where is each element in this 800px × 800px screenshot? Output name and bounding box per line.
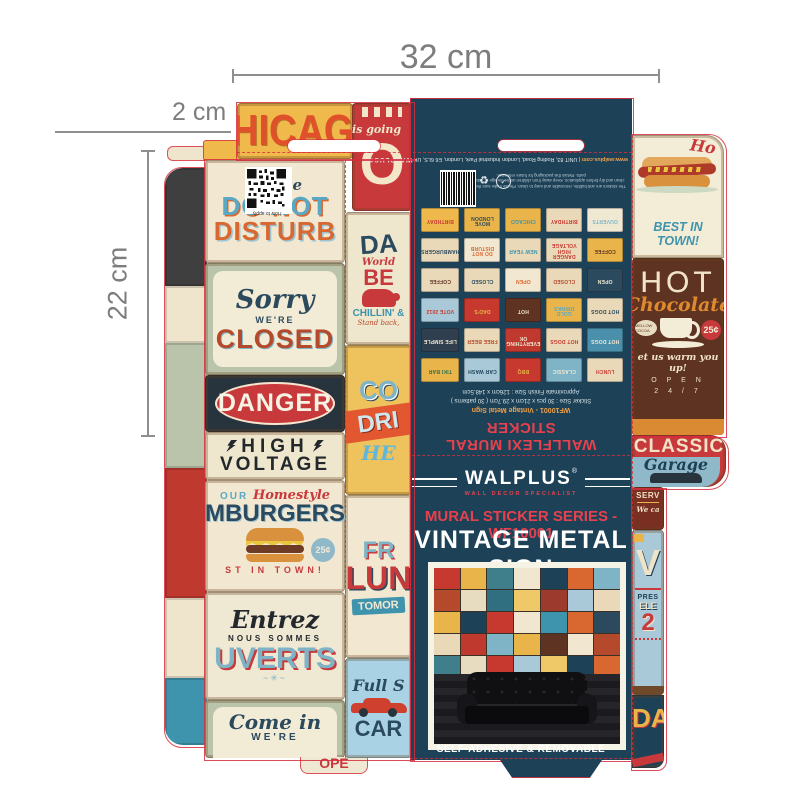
come-in-sign: Come in WE'RE (205, 700, 345, 758)
sign-band (632, 686, 664, 695)
car-illustration (650, 471, 702, 483)
thumbnail-sign: COFFEE (421, 268, 459, 292)
collage-tile (594, 634, 620, 655)
lightning-icon (226, 440, 237, 452)
collage-tile (487, 568, 513, 589)
collage-tile (594, 590, 620, 611)
thumbnail-sign: CHICAGO (505, 208, 541, 232)
cup-illustration (652, 318, 704, 348)
qr-caption: How to apply (243, 210, 291, 216)
high-voltage-sign: HIGH VOLTAGE (205, 432, 345, 480)
collage-tile (514, 634, 540, 655)
thumbnail-sign: LIFE SIMPLE (421, 328, 459, 352)
height-dimension-line (147, 150, 149, 437)
sign-decoration (362, 107, 402, 117)
pattern-thumbnail-grid: LUNCHCLASSICBBQCAR WASHTIKI BARHOT DOGSH… (421, 208, 623, 382)
hot-dog-sign: Ho BEST IN TOWN! (632, 135, 724, 258)
tick (141, 435, 155, 437)
car-illustration (351, 697, 407, 717)
ouverts-sign: Entrez NOUS SOMMES UVERTS ~✳~ (205, 592, 345, 700)
thumbnail-sign: EVERYTHING OK (505, 328, 541, 352)
registered-mark: ® (572, 468, 577, 475)
thumbnail-sign: MOVE LONDON (464, 208, 500, 232)
tick (232, 69, 234, 83)
thumbnail-sign: NEW YEAR (505, 238, 541, 262)
sorry-were-closed-sign: Sorry WE'RE CLOSED (205, 263, 345, 375)
collage-tile (541, 590, 567, 611)
thumbnail-sign: HOT (505, 298, 541, 322)
sku-line: WF10001 - Vintage Metal Sign (415, 406, 627, 413)
collage-tile (514, 590, 540, 611)
brand-lockup: WALPLUS® WALL DECOR SPECIALIST (412, 468, 630, 497)
classic-garage-sign: CLASSIC Garage (632, 435, 726, 487)
thumbnail-sign: DANGER HIGH VOLTAGE (546, 238, 582, 262)
thumbnail-sign: TIKI BAR (421, 358, 459, 382)
price-badge: 25¢ (311, 538, 335, 562)
height-dimension-label: 22 cm (103, 244, 134, 324)
pig-illustration (362, 289, 396, 307)
thumbnail-sign: CLOSED (464, 268, 500, 292)
collage-tile (514, 612, 540, 633)
collage-tile (434, 612, 460, 633)
thumbnail-sign: BBQ (505, 358, 541, 382)
brand-rule (585, 478, 630, 487)
thumbnail-sign: HAMBURGERS (421, 238, 459, 262)
collage-tile (487, 634, 513, 655)
collage-tile (541, 568, 567, 589)
collage-tile (487, 612, 513, 633)
product-spec-block: WF10001 - Vintage Metal Sign Sticker Siz… (415, 386, 627, 413)
hamburgers-sign: OUR Homestyle MBURGERS ST IN TOWN! 25¢ (205, 480, 345, 592)
partial-sign-tile (165, 468, 207, 598)
dads-bbq-sign: DA World BE CHILLIN' & Stand back, (345, 212, 412, 345)
recycle-icon: ♻ (479, 174, 489, 188)
thumbnail-sign: HOT DOGS (546, 328, 582, 352)
collage-tile (568, 568, 594, 589)
dads-sign-fragment: DA (632, 695, 664, 768)
brand-rule (412, 478, 457, 487)
thumbnail-sign: CLASSIC (546, 358, 582, 382)
sign-collage-wall (434, 568, 620, 677)
collage-tile (568, 634, 594, 655)
collage-tile (487, 590, 513, 611)
flap-dimension-line (55, 131, 231, 133)
sofa-illustration (457, 672, 597, 730)
burger-illustration (246, 528, 304, 562)
collage-tile (541, 634, 567, 655)
product-photo (428, 562, 626, 750)
collage-tile (434, 590, 460, 611)
thumbnail-sign: CLOSED (546, 268, 582, 292)
car-wash-sign: Full S CAR (345, 658, 412, 758)
service-sign: SERV We ca (632, 487, 664, 530)
collage-tile (434, 634, 460, 655)
fresh-lunch-sign: FR LUN TOMOR (345, 495, 412, 658)
certification-icon: ✓ (496, 174, 511, 189)
thumbnail-sign: HOT DOGS (587, 298, 623, 322)
collage-tile (461, 590, 487, 611)
thumbnail-sign: BIRTHDAY (546, 208, 582, 232)
thumbnail-sign: LUNCH (587, 358, 623, 382)
lightning-icon (313, 440, 324, 452)
finish-size-line: Approximate Finish Size : 126cm x 148.5c… (415, 386, 627, 395)
handle-slot-cutout (288, 140, 380, 152)
thumbnail-sign: HOT DOGS (587, 328, 623, 352)
qr-code (245, 167, 292, 214)
collage-tile (434, 568, 460, 589)
width-dimension-label: 32 cm (232, 38, 660, 77)
brand-tagline: WALL DECOR SPECIALIST (465, 491, 578, 497)
thumbnail-sign: BIRTHDAY (421, 208, 459, 232)
thumbnail-sign: VOTE 2012 (421, 298, 459, 322)
partial-sign-tile (165, 286, 207, 343)
thumbnail-sign: DAD'S (464, 298, 500, 322)
partial-sign-tile (165, 598, 207, 678)
thumbnail-sign: DO NOT DISTURB (464, 238, 500, 262)
barcode (440, 170, 476, 207)
cocoa-badge: MELLOW COCOA (635, 320, 657, 336)
collage-tile (568, 590, 594, 611)
tuck-flap: OPE (300, 757, 368, 774)
footer-claim: SELF-ADHESIVE & REMOVABLE (412, 744, 630, 755)
tuck-flap (500, 760, 602, 778)
thumbnail-sign: OPEN (587, 268, 623, 292)
partial-sign-tile (165, 343, 207, 468)
vote-election-sign: V PRES ELE 2 (632, 530, 664, 695)
collage-tile (594, 612, 620, 633)
width-dimension-line (232, 74, 660, 76)
left-edge-partial-signs (165, 168, 207, 745)
packaging-dieline-mockup: 32 cm 2 cm 22 cm HICAGO is going O Pleas… (0, 0, 800, 800)
price-badge: 25¢ (701, 320, 721, 340)
partial-sign-tile (165, 678, 207, 745)
hotdog-illustration (642, 157, 712, 191)
collage-tile (461, 568, 487, 589)
size-line: Sticker Size : 30 pcs x 21cm x 29.7cm ( … (415, 395, 627, 404)
thumbnail-sign: OUVERTS (587, 208, 623, 232)
partial-sign-tile (165, 168, 207, 286)
collage-tile (514, 568, 540, 589)
collage-tile (541, 612, 567, 633)
manufacturer-address: www.walplus.com | UNIT 83, Roding Road, … (414, 156, 628, 163)
collage-tile (568, 612, 594, 633)
collage-tile (461, 634, 487, 655)
sign-band (632, 419, 724, 435)
hot-chocolate-sign: HOT Chocolate et us warm you up! O P E N… (632, 258, 724, 435)
tick (658, 69, 660, 83)
thumbnail-sign: COFFEE (587, 238, 623, 262)
collage-tile (594, 568, 620, 589)
die-cut-tab (203, 140, 241, 161)
brand-name: WALPLUS (465, 468, 572, 489)
thumbnail-sign: OPEN (505, 268, 541, 292)
cold-drinks-here-sign: CO DRI HE (345, 345, 412, 495)
die-cut-tab (167, 146, 207, 161)
flap-dimension-label: 2 cm (172, 98, 226, 127)
collage-tile (461, 612, 487, 633)
handle-slot-cutout (498, 140, 584, 151)
thumbnail-sign: GOLD DRINKS (546, 298, 582, 322)
thumbnail-sign: FREE BEER (464, 328, 500, 352)
tick (141, 150, 155, 152)
sign-band (632, 753, 664, 767)
thumbnail-sign: CAR WASH (464, 358, 500, 382)
product-line-title: WALLFLEXI MURAL STICKER (412, 419, 630, 453)
danger-sign: DANGER (205, 375, 345, 432)
